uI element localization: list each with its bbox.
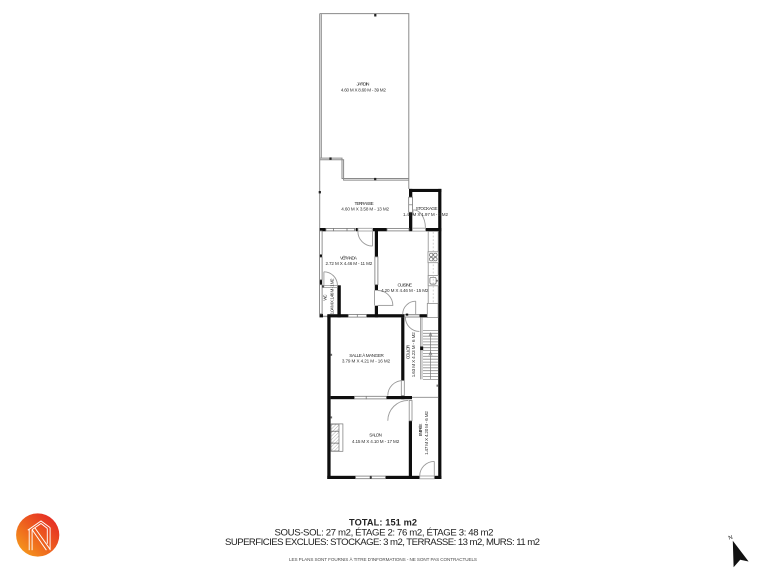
svg-text:COULOIR: COULOIR bbox=[406, 344, 411, 359]
svg-text:4.15 M X 4.10 M - 17 M2: 4.15 M X 4.10 M - 17 M2 bbox=[352, 439, 400, 444]
svg-text:4.60 M X 3.58 M - 13 M2: 4.60 M X 3.58 M - 13 M2 bbox=[341, 207, 389, 212]
svg-text:1.47 M X 4.20 M - 6 M2: 1.47 M X 4.20 M - 6 M2 bbox=[424, 411, 429, 455]
svg-text:1.63 M X 4.23 M - 6 M2: 1.63 M X 4.23 M - 6 M2 bbox=[411, 332, 416, 378]
svg-text:JARDIN: JARDIN bbox=[357, 82, 370, 87]
svg-text:LES PLANS SONT FOURNIS À TITRE: LES PLANS SONT FOURNIS À TITRE D'INFORMA… bbox=[289, 556, 477, 562]
svg-text:SUPERFICIES EXCLUES: STOCKAGE:: SUPERFICIES EXCLUES: STOCKAGE: 3 m2, TER… bbox=[225, 537, 540, 548]
svg-text:1.42 M X 1.97 M - 3 M2: 1.42 M X 1.97 M - 3 M2 bbox=[403, 212, 448, 217]
svg-text:4.20 M X 4.46 M - 15 M2: 4.20 M X 4.46 M - 15 M2 bbox=[381, 288, 429, 293]
svg-text:TERRASSE: TERRASSE bbox=[354, 201, 373, 206]
svg-text:SALLE À MANGER: SALLE À MANGER bbox=[349, 352, 384, 358]
svg-text:1.04 M X 1.46 M - 1 M2: 1.04 M X 1.46 M - 1 M2 bbox=[329, 278, 334, 314]
svg-text:4.60 M X 8.60 M - 39 M2: 4.60 M X 8.60 M - 39 M2 bbox=[341, 88, 386, 93]
svg-text:STOCKAGE: STOCKAGE bbox=[416, 206, 438, 211]
svg-text:WC: WC bbox=[322, 294, 327, 301]
svg-text:TOTAL: 151 m2: TOTAL: 151 m2 bbox=[349, 518, 417, 528]
svg-text:2.72 M X 4.46 M - 11 M2: 2.72 M X 4.46 M - 11 M2 bbox=[326, 261, 373, 266]
svg-text:ENTRÉE: ENTRÉE bbox=[417, 424, 423, 437]
svg-text:VÉRANDA: VÉRANDA bbox=[340, 254, 358, 260]
svg-text:3.79 M X 4.21 M - 16 M2: 3.79 M X 4.21 M - 16 M2 bbox=[342, 359, 391, 364]
svg-text:SALON: SALON bbox=[369, 432, 382, 437]
svg-text:CUISINE: CUISINE bbox=[398, 283, 413, 288]
